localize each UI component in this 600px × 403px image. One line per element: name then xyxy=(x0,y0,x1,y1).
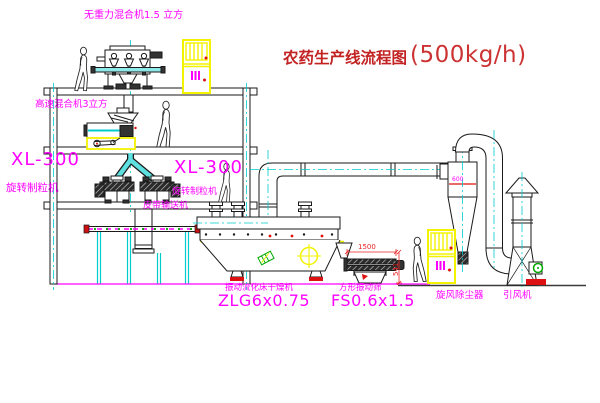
person-floor2 xyxy=(157,101,170,147)
exhaust-duct xyxy=(250,150,452,222)
label-fan: 引风机 xyxy=(503,291,532,301)
label-gravityless-mixer: 无重力混合机1.5 立方 xyxy=(84,11,183,21)
diagram-title: 农药生产线流程图 (500kg/h) xyxy=(283,45,527,66)
induced-draft-fan xyxy=(526,262,546,285)
person-ground xyxy=(413,237,426,281)
control-cabinet-right xyxy=(428,230,455,283)
label-xl300-left: XL-300 xyxy=(11,151,80,169)
dim-sieve-length: 1500 xyxy=(358,244,376,251)
sieve-feed-funnel xyxy=(336,243,352,258)
flow-diagram-canvas: 农药生产线流程图 (500kg/h) 无重力混合机1.5 立方 高速混合机3立方… xyxy=(0,0,600,403)
person-roof xyxy=(75,47,88,91)
label-xl300-center: XL-300 xyxy=(174,159,243,177)
title-capacity: (500kg/h) xyxy=(410,45,527,66)
label-granulator-left: 旋转制粒机 xyxy=(6,183,59,194)
label-belt-conveyor: 皮带输送机 xyxy=(143,202,188,211)
label-high-speed-mixer: 高速混合机3立方 xyxy=(35,100,108,110)
dim-sieve-height: 541 xyxy=(393,263,400,276)
high-speed-mixer xyxy=(84,108,138,149)
control-cabinet-top xyxy=(183,40,210,93)
label-sieve-model: FS0.6x1.5 xyxy=(331,293,415,309)
label-granulator-center: 旋转制粒机 xyxy=(172,188,217,197)
granulator-left xyxy=(95,176,134,203)
ground-line xyxy=(55,284,586,286)
mixer-feed-funnels xyxy=(110,53,149,68)
cyclone-mark: 600 xyxy=(452,177,463,183)
label-dryer-model: ZLG6x0.75 xyxy=(218,293,310,309)
title-chinese: 农药生产线流程图 xyxy=(283,51,407,67)
label-cyclone: 旋风除尘器 xyxy=(436,291,484,301)
y-chute xyxy=(117,153,154,179)
gravityless-mixer xyxy=(91,46,165,89)
